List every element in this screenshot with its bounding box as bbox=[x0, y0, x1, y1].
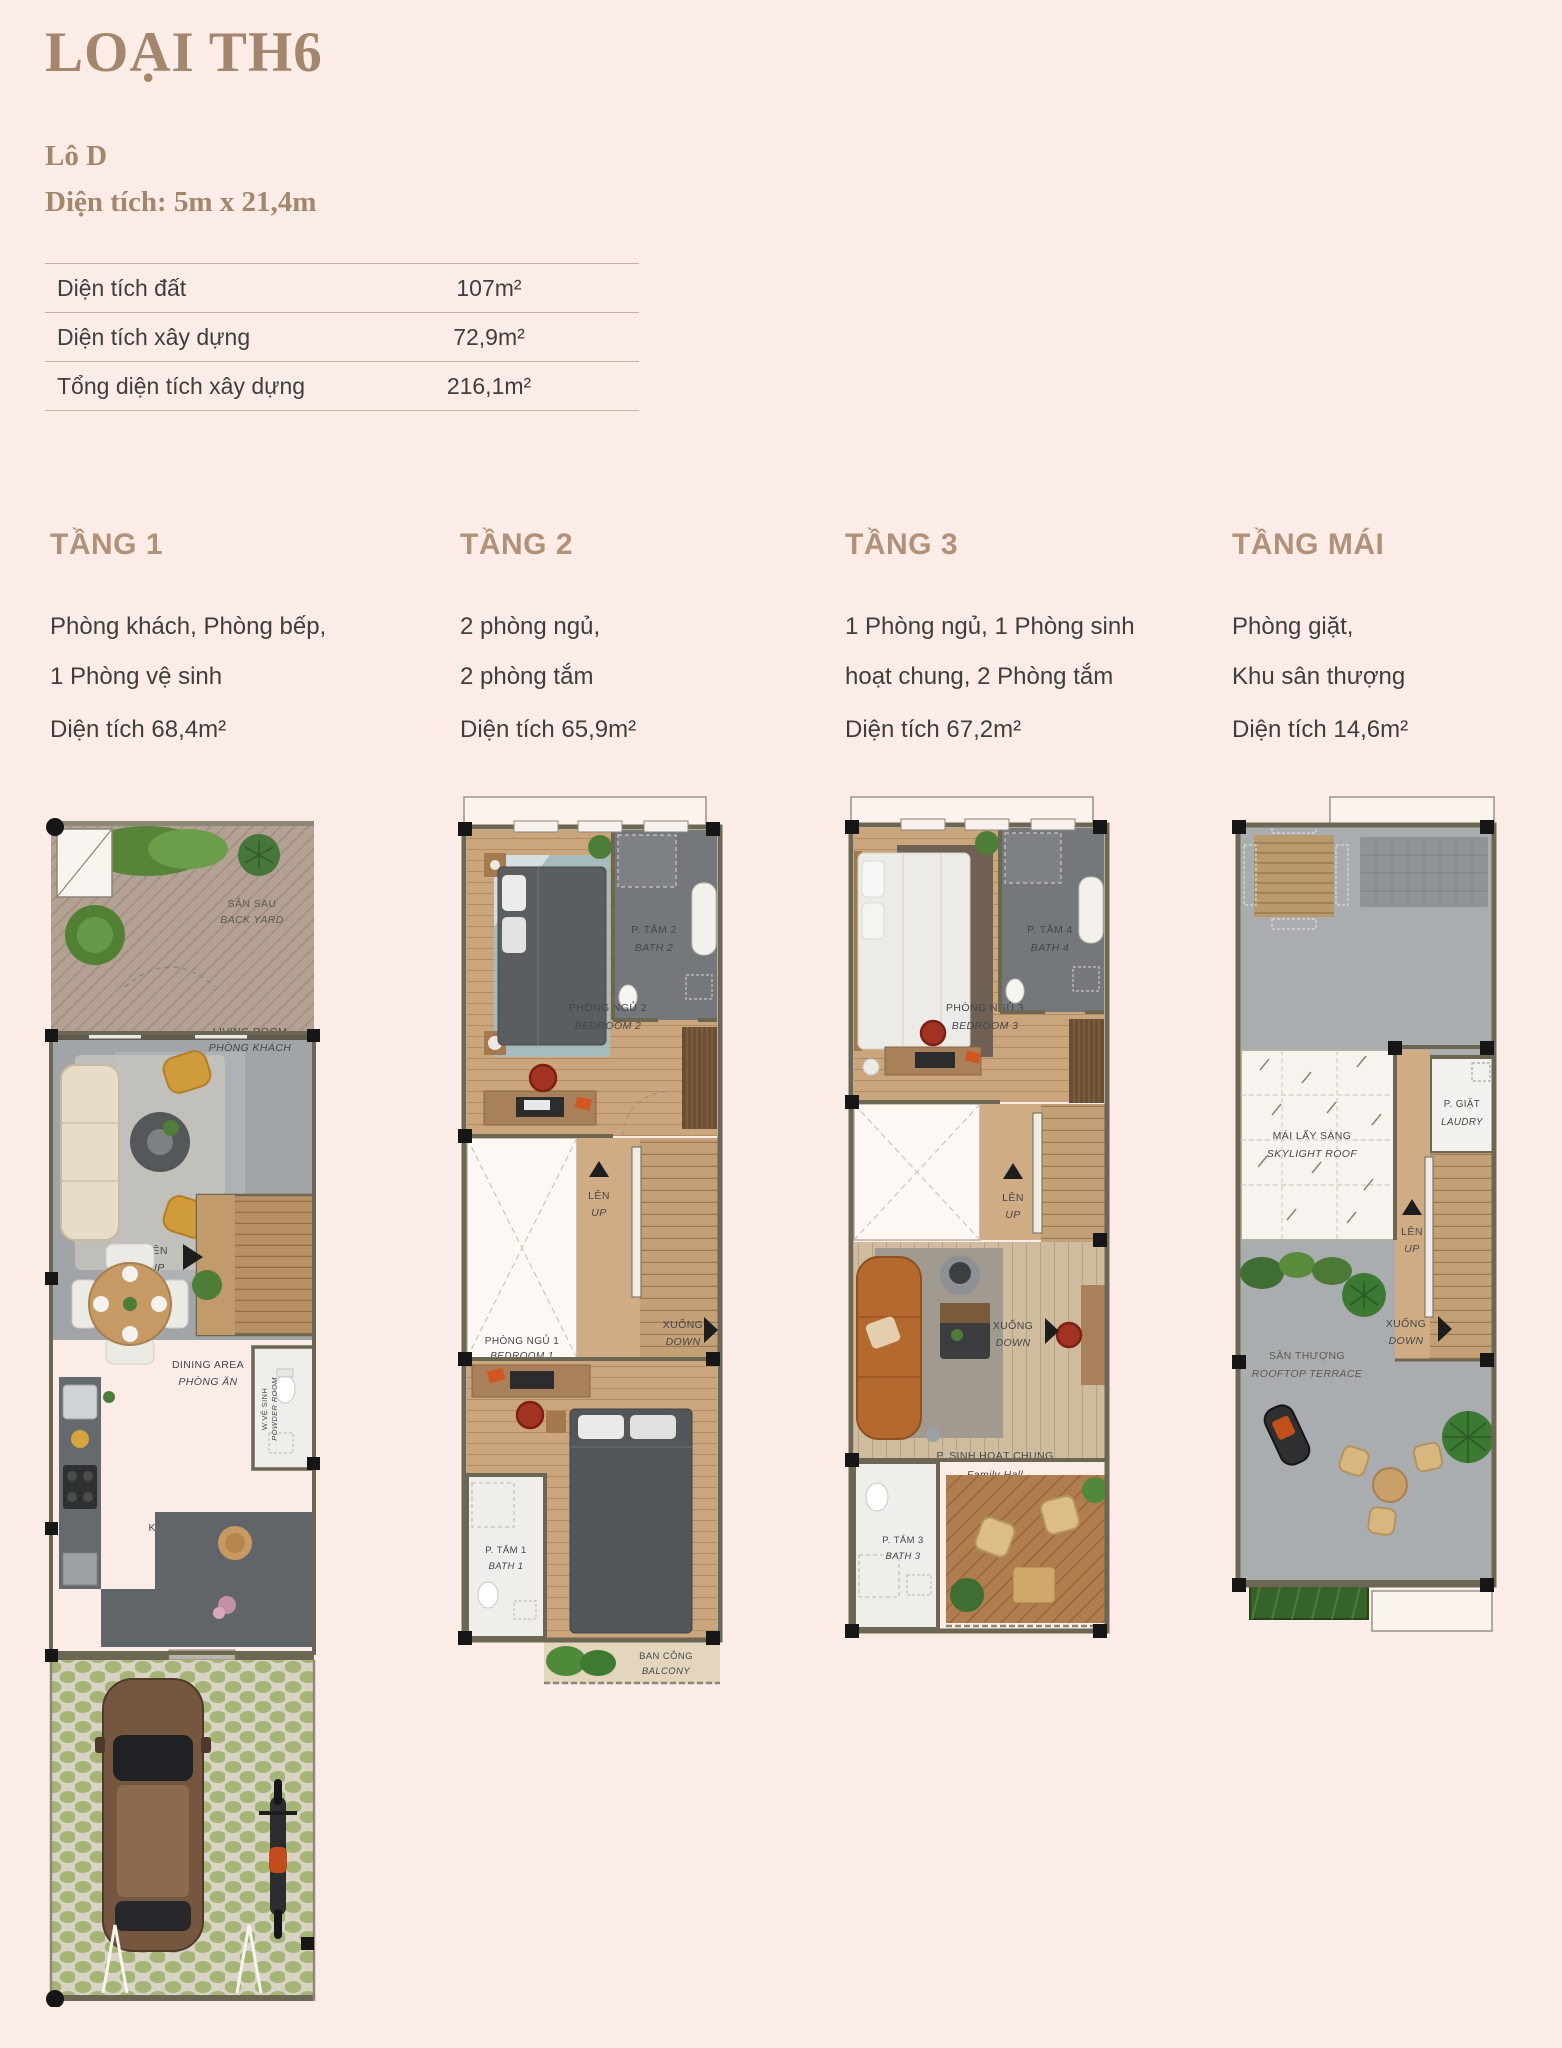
toilet bbox=[1006, 979, 1024, 1003]
backyard-label-vi: SÂN SAU bbox=[228, 897, 277, 910]
bedroom3-label-en: BEDROOM 3 bbox=[952, 1020, 1019, 1032]
row-label: Tổng diện tích xây dựng bbox=[45, 373, 339, 400]
skylight-label-vi: MÁI LẤY SÁNG bbox=[1273, 1129, 1352, 1142]
bath3-label-vi: P. TẮM 3 bbox=[882, 1535, 923, 1546]
sofa bbox=[61, 1065, 119, 1240]
floor-description: 2 phòng ngủ, 2 phòng tắm bbox=[460, 602, 840, 702]
brochure-page: { "page": { "background": "#fcece8", "ac… bbox=[0, 0, 1562, 2048]
stove bbox=[63, 1465, 97, 1509]
bed bbox=[570, 1409, 692, 1633]
down-label-en: DOWN bbox=[1389, 1335, 1424, 1347]
up-label-en: UP bbox=[1005, 1209, 1020, 1221]
plant bbox=[588, 835, 612, 859]
fruit-bowl bbox=[71, 1430, 89, 1448]
table-row: Diện tích đất 107m² bbox=[45, 264, 639, 313]
bedroom1-label-vi: PHÒNG NGỦ 1 bbox=[485, 1334, 559, 1347]
up-label-vi: LÊN bbox=[1002, 1191, 1024, 1204]
dimensions-label: Diện tích: 5m x 21,4m bbox=[45, 186, 316, 219]
plant bbox=[1082, 1477, 1108, 1503]
balcony-plants bbox=[546, 1646, 586, 1676]
bath1 bbox=[467, 1475, 545, 1638]
desk-chair bbox=[517, 1402, 543, 1428]
shower bbox=[618, 835, 676, 887]
roof-ledge bbox=[1330, 797, 1494, 825]
plant bbox=[950, 1578, 984, 1612]
floor-description: Phòng giặt, Khu sân thượng bbox=[1232, 602, 1562, 702]
floor-name: TẦNG 1 bbox=[50, 528, 430, 562]
floor-roof-summary: TẦNG MÁI Phòng giặt, Khu sân thượng Diện… bbox=[1232, 528, 1562, 744]
stair-railing bbox=[1033, 1113, 1042, 1233]
window bbox=[1031, 819, 1075, 830]
sofa bbox=[857, 1257, 921, 1439]
terrace-label-vi: SÂN THƯỢNG bbox=[1269, 1349, 1345, 1362]
skylight-label-en: SKYLIGHT ROOF bbox=[1267, 1148, 1358, 1160]
bath2-label-vi: P. TẮM 2 bbox=[631, 923, 676, 936]
row-value: 72,9m² bbox=[339, 324, 639, 351]
up-label-en: UP bbox=[591, 1207, 606, 1219]
area-table: Diện tích đất 107m² Diện tích xây dựng 7… bbox=[45, 263, 639, 411]
desk-chair bbox=[530, 1065, 556, 1091]
floor-description: Phòng khách, Phòng bếp, 1 Phòng vệ sinh bbox=[50, 602, 430, 702]
row-value: 107m² bbox=[339, 275, 639, 302]
stool bbox=[863, 1059, 879, 1075]
floor-plan-3: P. TẮM 4 BATH 4 PHÒNG NGỦ 3 BEDROOM 3 LÊ… bbox=[845, 795, 1115, 1638]
toilet bbox=[478, 1582, 498, 1608]
laundry-label-en: LAUDRY bbox=[1441, 1117, 1484, 1128]
backyard-label-en: BACK YARD bbox=[220, 914, 284, 926]
row-value: 216,1m² bbox=[339, 373, 639, 400]
wicker-chair bbox=[1039, 1494, 1081, 1536]
window bbox=[965, 819, 1009, 830]
deck-table bbox=[1013, 1567, 1055, 1603]
shower bbox=[1005, 833, 1061, 883]
window bbox=[514, 821, 558, 832]
floor-description: 1 Phòng ngủ, 1 Phòng sinh hoạt chung, 2 … bbox=[845, 602, 1225, 702]
up-label-vi: LÊN bbox=[588, 1189, 610, 1202]
bath1-label-vi: P. TẮM 1 bbox=[485, 1545, 526, 1556]
bush bbox=[1279, 1252, 1315, 1278]
floor-name: TẦNG 3 bbox=[845, 528, 1225, 562]
bath1-label-en: BATH 1 bbox=[489, 1561, 524, 1572]
plant bbox=[975, 831, 999, 855]
balcony-label-vi: BAN CÔNG bbox=[639, 1651, 693, 1662]
bathtub bbox=[1079, 877, 1103, 943]
window bbox=[901, 819, 945, 830]
powder-label-vi: W.VỆ SINH bbox=[260, 1388, 269, 1430]
up-label-vi: LÊN bbox=[1401, 1225, 1423, 1238]
down-label-vi: XUỐNG bbox=[663, 1317, 704, 1331]
toilet bbox=[866, 1483, 888, 1511]
up-label-en: UP bbox=[1404, 1243, 1419, 1255]
bath4-label-vi: P. TẮM 4 bbox=[1027, 923, 1072, 936]
row-label: Diện tích xây dựng bbox=[45, 324, 339, 351]
fridge bbox=[63, 1553, 97, 1585]
floor-area: Diện tích 67,2m² bbox=[845, 716, 1225, 744]
laundry-label-vi: P. GIẶT bbox=[1444, 1099, 1480, 1110]
pergola-table bbox=[1254, 835, 1334, 917]
floor-plan-roof: MÁI LẤY SÁNG SKYLIGHT ROOF P. GIẶT LAUDR… bbox=[1232, 795, 1502, 1660]
lot-label: Lô D bbox=[45, 140, 107, 173]
page-title: LOẠI TH6 bbox=[45, 20, 323, 85]
down-label-en: DOWN bbox=[996, 1337, 1031, 1349]
car bbox=[95, 1679, 211, 1951]
stair-railing bbox=[1425, 1157, 1433, 1317]
wicker-chair bbox=[1367, 1506, 1396, 1535]
skylight-roof bbox=[1241, 1050, 1395, 1240]
sink bbox=[63, 1385, 97, 1419]
down-label-vi: XUỐNG bbox=[993, 1318, 1034, 1332]
floor-name: TẦNG 2 bbox=[460, 528, 840, 562]
bush bbox=[1312, 1257, 1352, 1285]
floor-1-summary: TẦNG 1 Phòng khách, Phòng bếp, 1 Phòng v… bbox=[50, 528, 430, 744]
down-label-en: DOWN bbox=[666, 1336, 701, 1348]
desk bbox=[1081, 1285, 1107, 1385]
stair-railing bbox=[632, 1147, 641, 1297]
bush bbox=[1240, 1257, 1284, 1289]
floor-plan-2: P. TẮM 2 BATH 2 PHÒNG NGỦ 2 BEDROOM 2 LÊ… bbox=[458, 795, 728, 1690]
bath4-label-en: BATH 4 bbox=[1031, 942, 1069, 954]
table-row: Diện tích xây dựng 72,9m² bbox=[45, 313, 639, 362]
desk-chair bbox=[1057, 1323, 1081, 1347]
bath3-label-en: BATH 3 bbox=[886, 1551, 921, 1562]
window bbox=[578, 821, 622, 832]
balcony-label-en: BALCONY bbox=[642, 1666, 690, 1677]
ledge bbox=[1372, 1591, 1492, 1631]
dining-label-vi: PHÒNG ĂN bbox=[178, 1375, 237, 1388]
wicker-chair bbox=[1413, 1442, 1444, 1473]
floor-3-summary: TẦNG 3 1 Phòng ngủ, 1 Phòng sinh hoạt ch… bbox=[845, 528, 1225, 744]
floor-area: Diện tích 65,9m² bbox=[460, 716, 840, 744]
floor-area: Diện tích 68,4m² bbox=[50, 716, 430, 744]
bedroom2-label-vi: PHÒNG NGỦ 2 bbox=[569, 1001, 647, 1014]
floor-2-summary: TẦNG 2 2 phòng ngủ, 2 phòng tắm Diện tíc… bbox=[460, 528, 840, 744]
floor-area: Diện tích 14,6m² bbox=[1232, 716, 1562, 744]
dining-label-en: DINING AREA bbox=[172, 1359, 244, 1371]
table-row: Tổng diện tích xây dựng 216,1m² bbox=[45, 362, 639, 411]
bath2-label-en: BATH 2 bbox=[635, 942, 673, 954]
plant bbox=[192, 1270, 222, 1300]
nightstand bbox=[546, 1411, 566, 1433]
desk-chair bbox=[921, 1021, 945, 1045]
living-label-vi: PHÒNG KHÁCH bbox=[209, 1041, 292, 1054]
terrace-label-en: ROOFTOP TERRACE bbox=[1252, 1368, 1363, 1380]
floor-lamp bbox=[926, 1428, 940, 1442]
row-label: Diện tích đất bbox=[45, 275, 339, 302]
window bbox=[644, 821, 688, 832]
planter-box bbox=[1250, 1587, 1368, 1619]
bathtub bbox=[692, 883, 716, 955]
terrace-table bbox=[1373, 1468, 1407, 1502]
powder-label-en: POWDER ROOM bbox=[270, 1377, 279, 1441]
floor-plan-1: SÂN SAU BACK YARD LIVING ROOM PHÒNG KHÁC… bbox=[45, 817, 320, 2007]
down-label-vi: XUỐNG bbox=[1386, 1316, 1427, 1330]
floor-name: TẦNG MÁI bbox=[1232, 528, 1562, 562]
